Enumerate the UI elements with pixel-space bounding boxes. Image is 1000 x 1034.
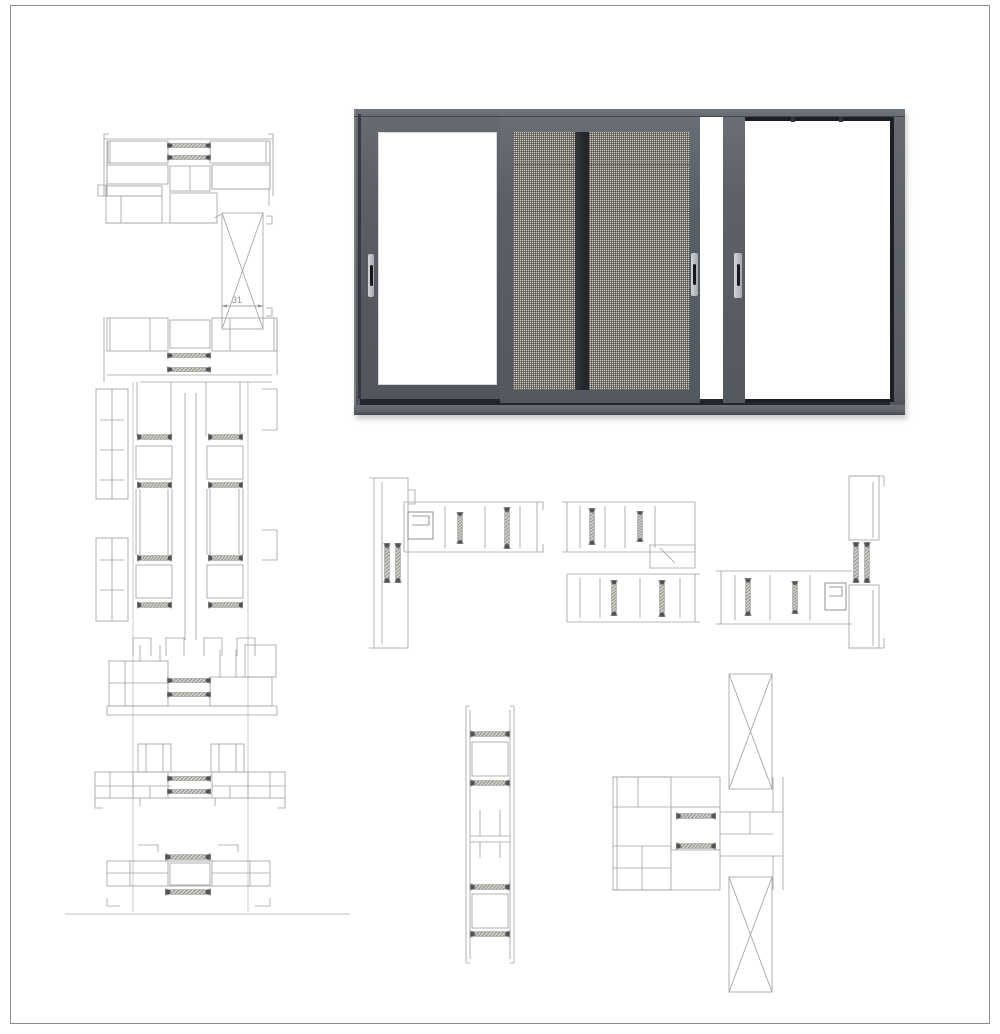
svg-text:31: 31 <box>232 295 242 305</box>
